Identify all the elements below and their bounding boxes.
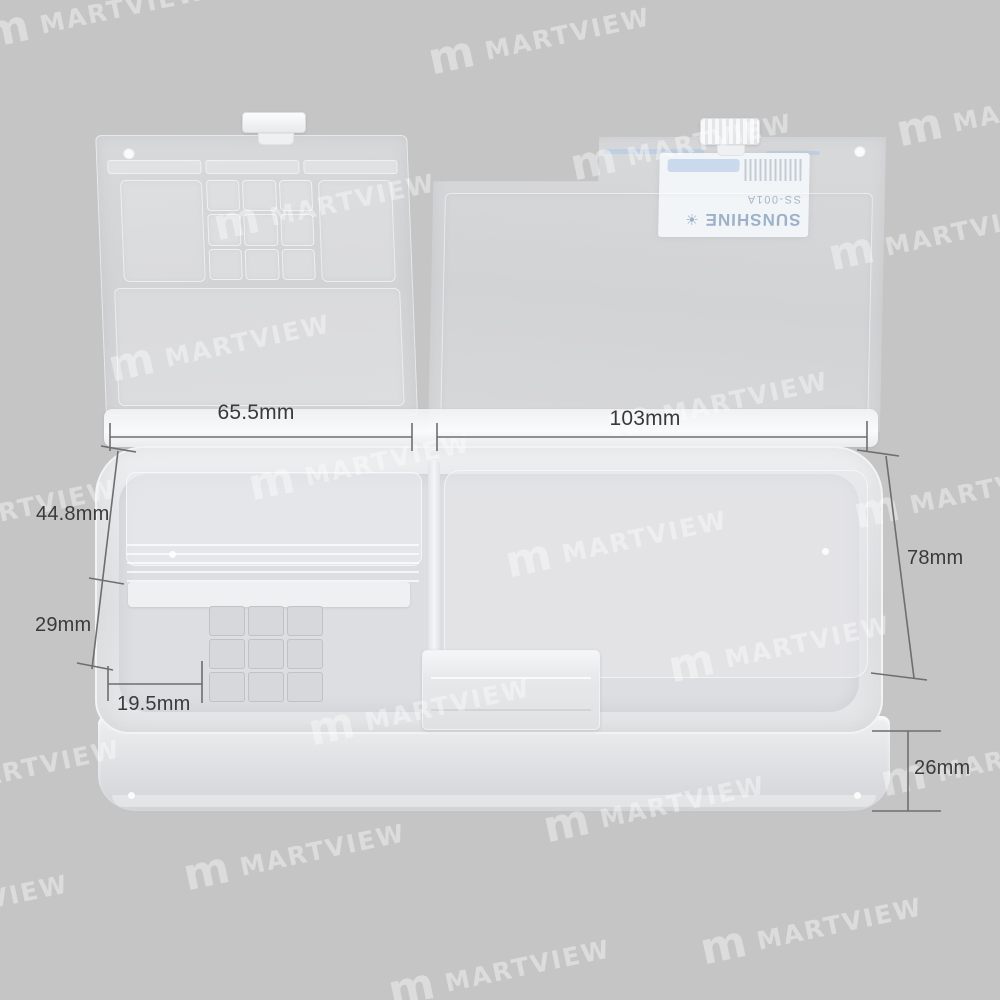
dim-tick [857, 450, 899, 456]
molding-dot [128, 792, 135, 799]
small-compartment-cell [248, 672, 284, 702]
barcode [743, 159, 801, 181]
lid-grid-cell [206, 180, 241, 211]
lid-grid-cell [281, 249, 316, 280]
lid-band-segment [303, 160, 398, 174]
small-compartments [209, 606, 323, 702]
martview-logo-icon: m [385, 966, 437, 1000]
lid-band-segment [205, 160, 300, 174]
martview-watermark-text: MARTVIEW [442, 934, 613, 997]
dim-label-front-wall-height: 29mm [35, 614, 91, 637]
box-lid-right: SUNSHINE ☀ SS-001A [428, 137, 886, 432]
lid-panel-left [120, 180, 206, 282]
martview-watermark: mMARTVIEW [426, 0, 654, 81]
lid-molded-grid [206, 180, 316, 280]
lid-grid-cell [242, 180, 277, 211]
molding-dot [822, 548, 829, 555]
divider-strip [128, 582, 410, 607]
small-compartment-cell [287, 606, 323, 636]
lid-grid-cell [279, 180, 314, 211]
lid-grid-cell [209, 249, 244, 280]
lid-grid-cell [244, 214, 279, 245]
martview-watermark-text: MARTVIEW [37, 0, 208, 40]
lid-top-band [107, 160, 398, 174]
lid-grid-cell [207, 214, 242, 245]
martview-watermark: mMARTVIEW [698, 889, 926, 970]
hanger-hole-right [854, 145, 866, 157]
martview-logo-icon: m [180, 850, 232, 894]
lid-inner-outline [440, 193, 873, 418]
martview-logo-icon: m [425, 34, 477, 78]
martview-watermark-text: MARTVIEW [882, 198, 1000, 261]
small-compartment-cell [209, 639, 245, 669]
martview-watermark: mMARTVIEW [181, 815, 409, 896]
small-compartment-cell [209, 672, 245, 702]
martview-watermark: mMARTVIEW [0, 0, 209, 55]
small-compartment-cell [248, 639, 284, 669]
dim-label-lid-left-width: 65.5mm [196, 401, 316, 425]
martview-watermark: mMARTVIEW [386, 931, 614, 1000]
martview-logo-icon: m [893, 106, 945, 150]
dim-label-base-height: 26mm [914, 757, 970, 780]
small-compartment-cell [287, 639, 323, 669]
hanger-hole-left [123, 147, 135, 159]
martview-watermark-text: MARTVIEW [0, 869, 71, 932]
molding-dot [169, 551, 176, 558]
martview-watermark-text: MARTVIEW [950, 74, 1000, 137]
martview-watermark-text: MARTVIEW [754, 892, 925, 955]
label-bottom-row [667, 159, 801, 181]
lid-panel-lower [114, 288, 405, 406]
martview-watermark: mMARTVIEW [894, 71, 1000, 152]
lid-latch-tab-left [242, 112, 306, 133]
compartment-right [444, 470, 868, 678]
lid-panel-right [318, 180, 396, 282]
box-tray [95, 446, 883, 734]
martview-logo-icon: m [697, 924, 749, 968]
lid-grid-cell [280, 214, 315, 245]
lid-grid-cell [245, 249, 280, 280]
base-bottom-highlight [112, 795, 876, 807]
molding-dot [854, 792, 861, 799]
martview-watermark-text: MARTVIEW [237, 818, 408, 881]
martview-watermark: mMARTVIEW [0, 866, 72, 947]
box-lid-left [95, 135, 418, 416]
card-slot-ridges [127, 544, 419, 582]
label-blue-strip [667, 159, 739, 172]
dim-label-box-depth: 78mm [907, 547, 963, 570]
front-latch-block [422, 650, 600, 730]
product-photo: SUNSHINE ☀ SS-001A [0, 0, 1000, 1000]
dim-label-lid-right-width: 103mm [585, 407, 705, 431]
martview-watermark-text: MARTVIEW [907, 456, 1000, 519]
martview-watermark-text: MARTVIEW [482, 2, 653, 65]
lid-latch-tab-right [700, 118, 760, 145]
small-compartment-cell [248, 606, 284, 636]
lid-band-segment [107, 160, 202, 174]
dim-label-back-wall-height: 44.8mm [36, 503, 109, 526]
martview-logo-icon: m [0, 8, 33, 52]
small-compartment-cell [287, 672, 323, 702]
dim-label-corner-offset: 19.5mm [117, 693, 190, 716]
small-compartment-cell [209, 606, 245, 636]
